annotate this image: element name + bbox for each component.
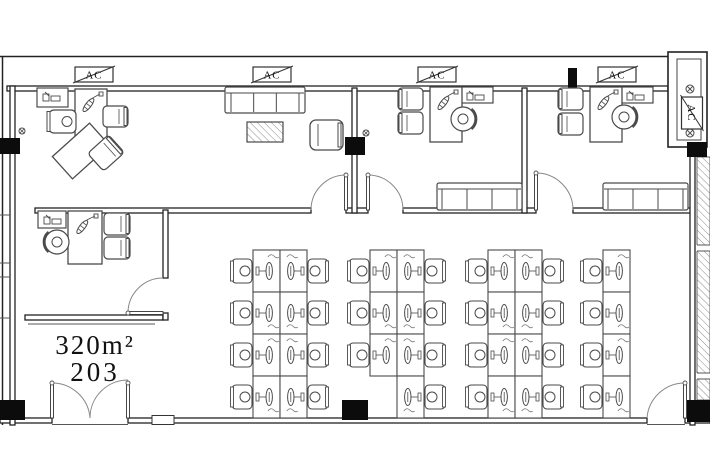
guest-chair-back bbox=[399, 90, 402, 109]
wall bbox=[690, 147, 695, 425]
workstation-chair-back bbox=[348, 303, 351, 323]
workstation-chair-back bbox=[443, 387, 446, 407]
room-number-label: 203 bbox=[36, 357, 154, 388]
guest-chair-back bbox=[124, 108, 127, 126]
guest-chair-back bbox=[126, 215, 129, 234]
keyboard-icon bbox=[606, 309, 609, 317]
workstation-chair-back bbox=[348, 261, 351, 281]
workstation-chair-ring bbox=[475, 266, 485, 276]
structural-column bbox=[687, 142, 707, 157]
structural-column bbox=[687, 400, 710, 422]
keyboard-icon bbox=[536, 267, 539, 275]
structural-column bbox=[0, 400, 25, 420]
workstation-chair-back bbox=[561, 345, 564, 365]
workstation-chair-back bbox=[326, 303, 329, 323]
structural-column bbox=[0, 138, 20, 154]
door-hinge-dot bbox=[344, 173, 348, 177]
bench-sofa bbox=[603, 183, 688, 210]
workstation-chair-ring bbox=[357, 266, 367, 276]
structural-column bbox=[345, 137, 365, 155]
keyboard-icon bbox=[606, 267, 609, 275]
keyboard-icon bbox=[301, 351, 304, 359]
keyboard-icon bbox=[491, 393, 494, 401]
wall bbox=[163, 210, 168, 278]
workstation-chair-ring bbox=[240, 266, 250, 276]
workstation-chair-ring bbox=[240, 308, 250, 318]
workstation-chair-back bbox=[466, 387, 469, 407]
workstation-chair-ring bbox=[357, 308, 367, 318]
ac-unit-label: AC bbox=[428, 70, 445, 82]
workstation-chair-ring bbox=[475, 308, 485, 318]
workstation-chair-back bbox=[581, 261, 584, 281]
office-chair-ring bbox=[52, 237, 62, 247]
computer-icon bbox=[475, 95, 484, 100]
office-chair-ring bbox=[619, 112, 629, 122]
workstation-chair-back bbox=[326, 345, 329, 365]
ac-unit-label: AC bbox=[685, 104, 697, 121]
workstation-chair-ring bbox=[545, 392, 555, 402]
workstation-chair-back bbox=[561, 303, 564, 323]
keyboard-icon bbox=[491, 309, 494, 317]
keyboard-icon bbox=[418, 351, 421, 359]
wall bbox=[25, 315, 163, 320]
computer-icon bbox=[52, 219, 61, 224]
workstation-chair-back bbox=[466, 345, 469, 365]
door-leaf bbox=[684, 383, 687, 418]
workstation-chair-back bbox=[348, 345, 351, 365]
keyboard-icon bbox=[536, 309, 539, 317]
keyboard-icon bbox=[301, 267, 304, 275]
workstation-chair-back bbox=[561, 387, 564, 407]
door-leaf bbox=[535, 173, 538, 210]
workstation-chair-back bbox=[231, 387, 234, 407]
wall bbox=[522, 88, 527, 213]
keyboard-icon bbox=[491, 267, 494, 275]
keyboard-icon bbox=[418, 309, 421, 317]
workstation-chair-ring bbox=[240, 392, 250, 402]
desk bbox=[68, 211, 102, 264]
door-leaf bbox=[367, 175, 370, 210]
workstation-chair-ring bbox=[240, 350, 250, 360]
armchair-back bbox=[338, 123, 341, 147]
workstation-chair-back bbox=[466, 303, 469, 323]
workstation-chair-back bbox=[443, 345, 446, 365]
keyboard-icon bbox=[301, 393, 304, 401]
workstation-chair-ring bbox=[427, 350, 437, 360]
keyboard-icon bbox=[256, 267, 259, 275]
keyboard-icon bbox=[256, 309, 259, 317]
guest-chair-back bbox=[559, 90, 562, 109]
structural-column bbox=[342, 400, 368, 420]
workstation-chair-ring bbox=[545, 266, 555, 276]
workstation-chair-back bbox=[326, 261, 329, 281]
executive-chair-back bbox=[47, 112, 50, 132]
door-leaf bbox=[51, 383, 54, 418]
door-leaf bbox=[345, 175, 348, 210]
workstation-chair-back bbox=[231, 345, 234, 365]
workstation-chair-ring bbox=[310, 350, 320, 360]
wall bbox=[163, 313, 168, 320]
workstation-chair-back bbox=[581, 303, 584, 323]
floor-plan: ACACACACAC 320m² 203 bbox=[0, 0, 710, 472]
keyboard-icon bbox=[418, 267, 421, 275]
guest-chair-back bbox=[126, 239, 129, 258]
workstation-chair-back bbox=[231, 261, 234, 281]
office-chair-ring bbox=[458, 114, 468, 124]
computer-icon bbox=[51, 96, 60, 101]
executive-chair-ring bbox=[62, 117, 72, 127]
keyboard-icon bbox=[373, 351, 376, 359]
window-marker bbox=[152, 416, 174, 425]
workstation-chair-ring bbox=[475, 392, 485, 402]
door-hinge-dot bbox=[126, 311, 130, 315]
ac-unit-vertical: AC bbox=[681, 95, 704, 131]
workstation-chair-ring bbox=[427, 308, 437, 318]
workstation-chair-ring bbox=[590, 308, 600, 318]
workstation-chair-ring bbox=[590, 392, 600, 402]
shaft-divider-gap bbox=[696, 245, 710, 251]
keyboard-icon bbox=[256, 393, 259, 401]
workstation-chair-ring bbox=[545, 350, 555, 360]
sofa bbox=[225, 87, 305, 113]
workstation-chair-back bbox=[581, 345, 584, 365]
workstation-chair-ring bbox=[310, 266, 320, 276]
workstation-chair-back bbox=[466, 261, 469, 281]
door-leaf bbox=[128, 312, 163, 315]
keyboard-icon bbox=[373, 309, 376, 317]
ac-unit-label: AC bbox=[263, 70, 280, 82]
keyboard-icon bbox=[536, 393, 539, 401]
workstation-chair-ring bbox=[310, 392, 320, 402]
workstation-chair-back bbox=[326, 387, 329, 407]
workstation-chair-back bbox=[443, 303, 446, 323]
workstation-chair-back bbox=[231, 303, 234, 323]
door-hinge-dot bbox=[534, 171, 538, 175]
keyboard-icon bbox=[606, 393, 609, 401]
workstation-chair-ring bbox=[545, 308, 555, 318]
door-hinge-dot bbox=[683, 381, 687, 385]
workstation-chair-ring bbox=[590, 266, 600, 276]
ac-unit-label: AC bbox=[85, 70, 102, 82]
wall bbox=[10, 86, 15, 425]
bench-sofa bbox=[437, 183, 522, 210]
stair-shaft-hatch bbox=[697, 157, 710, 400]
workstation-chair-ring bbox=[357, 350, 367, 360]
computer-icon bbox=[635, 95, 644, 100]
workstation-chair-back bbox=[581, 387, 584, 407]
workstation-chair-back bbox=[443, 261, 446, 281]
keyboard-icon bbox=[256, 351, 259, 359]
structural-column bbox=[568, 68, 577, 88]
workstation-chair-ring bbox=[590, 350, 600, 360]
keyboard-icon bbox=[536, 351, 539, 359]
door-leaf bbox=[127, 383, 130, 418]
keyboard-icon bbox=[491, 351, 494, 359]
wall bbox=[128, 418, 647, 423]
keyboard-icon bbox=[301, 309, 304, 317]
workstation-chair-ring bbox=[475, 350, 485, 360]
shaft-divider-gap bbox=[696, 373, 710, 379]
workstation-chair-back bbox=[561, 261, 564, 281]
floor-plan-svg: ACACACACAC bbox=[0, 0, 710, 472]
guest-chair-back bbox=[559, 115, 562, 134]
coffee-table bbox=[247, 122, 283, 142]
workstation-chair-ring bbox=[310, 308, 320, 318]
keyboard-icon bbox=[373, 267, 376, 275]
door-hinge-dot bbox=[366, 173, 370, 177]
workstation-chair-ring bbox=[427, 392, 437, 402]
guest-chair-back bbox=[399, 114, 402, 133]
ac-unit-label: AC bbox=[608, 70, 625, 82]
workstation-chair-ring bbox=[427, 266, 437, 276]
keyboard-icon bbox=[418, 393, 421, 401]
keyboard-icon bbox=[606, 351, 609, 359]
